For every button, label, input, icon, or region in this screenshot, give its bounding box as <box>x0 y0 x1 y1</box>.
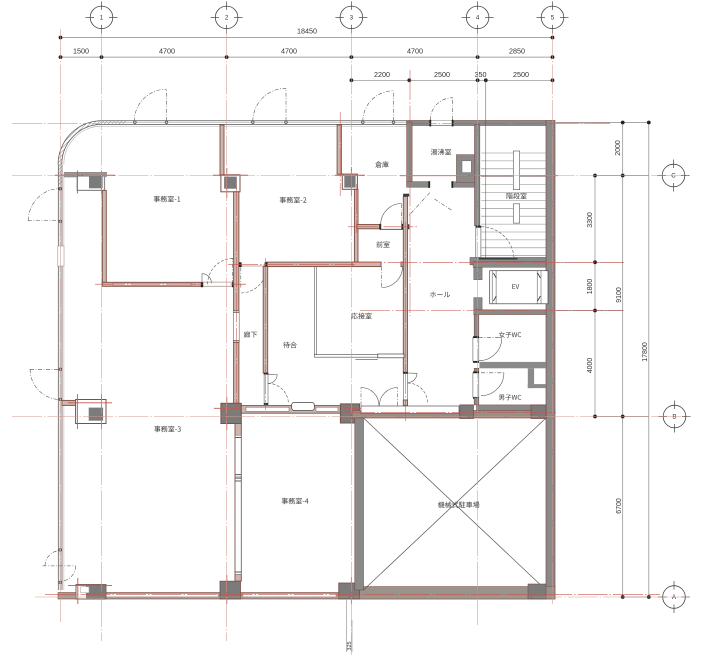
svg-text:4: 4 <box>476 15 480 22</box>
svg-text:2000: 2000 <box>615 140 622 156</box>
svg-text:9100: 9100 <box>616 287 623 303</box>
svg-text:1800: 1800 <box>587 279 594 295</box>
svg-text:2500: 2500 <box>513 70 529 79</box>
svg-text:4000: 4000 <box>587 358 594 374</box>
svg-text:3: 3 <box>350 15 354 22</box>
svg-text:350: 350 <box>475 70 487 79</box>
svg-text:1: 1 <box>100 15 104 22</box>
svg-text:2850: 2850 <box>509 47 525 56</box>
svg-text:C: C <box>671 173 676 180</box>
svg-text:2200: 2200 <box>374 70 390 79</box>
svg-text:2: 2 <box>225 15 229 22</box>
svg-text:4700: 4700 <box>407 47 423 56</box>
svg-text:3300: 3300 <box>587 212 594 228</box>
svg-text:4700: 4700 <box>281 47 297 56</box>
svg-text:18450: 18450 <box>297 27 317 36</box>
svg-text:17800: 17800 <box>642 342 649 362</box>
svg-text:4700: 4700 <box>159 47 175 56</box>
svg-text:6700: 6700 <box>616 498 623 514</box>
svg-text:5: 5 <box>551 15 555 22</box>
svg-text:B: B <box>672 414 676 421</box>
svg-text:325: 325 <box>347 641 353 650</box>
svg-text:2500: 2500 <box>434 70 450 79</box>
svg-text:1500: 1500 <box>73 47 89 56</box>
